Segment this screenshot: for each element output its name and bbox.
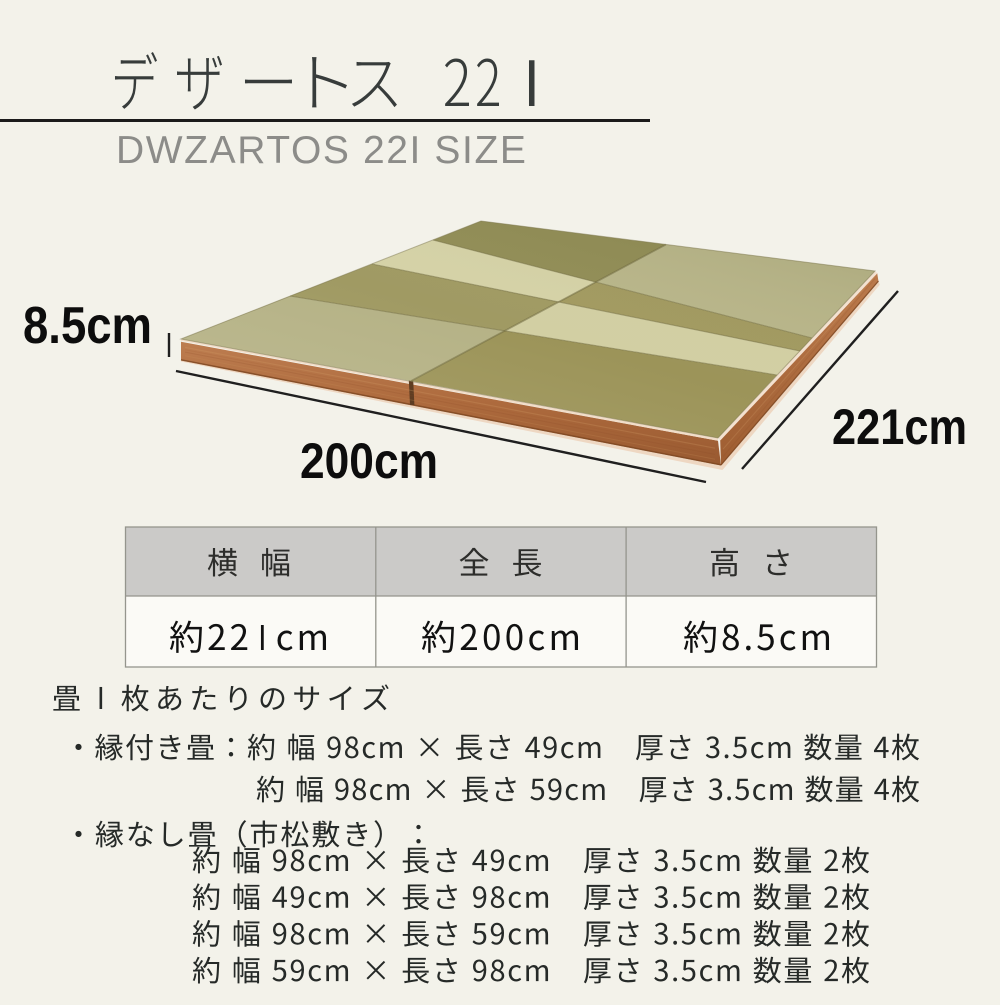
- svg-text:221cm: 221cm: [832, 399, 967, 455]
- svg-text:DWZARTOS 22I SIZE: DWZARTOS 22I SIZE: [116, 129, 528, 172]
- svg-text:8.5cm: 8.5cm: [23, 297, 152, 355]
- svg-text:200cm: 200cm: [300, 433, 438, 489]
